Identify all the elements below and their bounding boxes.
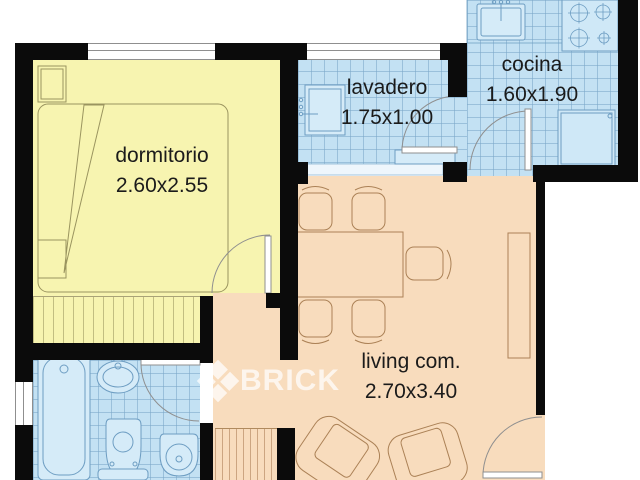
dining-chair: [299, 300, 332, 344]
entrance-door-arc: [483, 417, 542, 476]
nightstand: [38, 66, 66, 102]
bath-mat: [98, 469, 148, 480]
armchair: [290, 410, 386, 480]
wall: [15, 43, 33, 382]
room-name: cocina: [442, 50, 622, 80]
wall: [15, 343, 213, 360]
bathroom-fixtures: [38, 348, 198, 480]
wall: [443, 162, 467, 182]
wall: [266, 293, 282, 308]
dining-chair: [352, 300, 385, 344]
laundry-counter: [298, 164, 443, 175]
room-dims: 1.60x1.90: [442, 80, 622, 110]
room-label-living: living com. 2.70x3.40: [311, 347, 511, 407]
wall: [277, 428, 295, 480]
floor-plan: dormitorio 2.60x2.55 lavadero 1.75x1.00 …: [0, 0, 640, 480]
laundry-window: [307, 43, 440, 60]
armchair: [384, 419, 471, 480]
laundry-door-leaf: [402, 147, 457, 153]
nightstand: [38, 240, 66, 278]
room-label-cocina: cocina 1.60x1.90: [442, 50, 622, 110]
fridge: [558, 110, 615, 167]
toilet: [106, 419, 141, 477]
room-label-dormitorio: dormitorio 2.60x2.55: [62, 141, 262, 201]
dining-chair: [299, 187, 332, 231]
bathtub: [38, 352, 90, 480]
wall: [15, 43, 88, 60]
room-name: living com.: [311, 347, 511, 377]
wall: [15, 425, 33, 480]
wall: [296, 162, 308, 184]
dining-chair: [352, 187, 385, 231]
bathroom-door-arc: [141, 363, 199, 421]
wall: [533, 165, 638, 182]
entrance-door-leaf: [483, 472, 542, 478]
room-dims: 2.60x2.55: [62, 171, 262, 201]
sideboard: [508, 233, 530, 358]
kitchen-door-leaf: [525, 109, 531, 170]
bedroom-door-arc: [212, 235, 270, 293]
bathroom-window: [15, 382, 33, 425]
room-name: dormitorio: [62, 141, 262, 171]
dining-chair: [406, 247, 451, 280]
bedroom-window: [88, 43, 215, 60]
bedroom-door-leaf: [265, 236, 271, 293]
wall: [536, 176, 545, 415]
living-furniture: [290, 187, 530, 480]
brand-logo-icon: [197, 360, 239, 402]
wall: [200, 423, 213, 480]
room-dims: 2.70x3.40: [311, 377, 511, 407]
stove: [562, 0, 618, 51]
dining-table: [290, 232, 403, 297]
